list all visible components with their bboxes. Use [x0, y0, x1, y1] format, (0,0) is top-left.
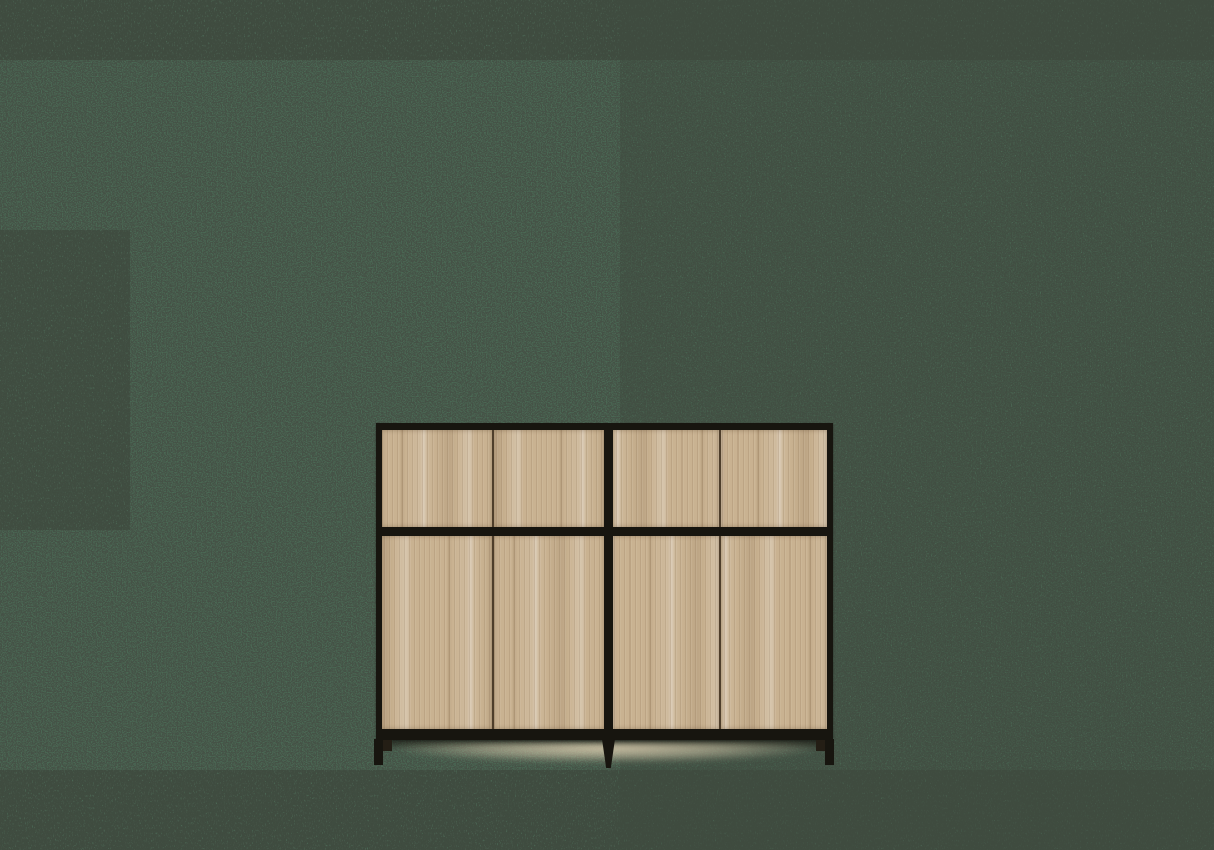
- bay-left-door-row: [382, 536, 604, 729]
- drawer-front-right-a: [613, 430, 719, 527]
- drawer-front-right-b: [721, 430, 827, 527]
- door-left-a: [382, 536, 492, 729]
- drawer-front-left-b: [494, 430, 604, 527]
- bay-right-door-row: [613, 536, 827, 729]
- cabinet-foot-bracket-right: [816, 740, 825, 751]
- door-left-b: [494, 536, 604, 729]
- bay-right-drawer-row: [613, 430, 827, 527]
- cabinet-leg-left: [374, 739, 383, 765]
- cabinet-foot-bracket-left: [383, 740, 392, 751]
- scene-background: [0, 0, 1214, 850]
- bay-left-drawer-row: [382, 430, 604, 527]
- drawer-front-left-a: [382, 430, 492, 527]
- door-right-b: [721, 536, 827, 729]
- cabinet-leg-right: [825, 739, 834, 765]
- door-right-a: [613, 536, 719, 729]
